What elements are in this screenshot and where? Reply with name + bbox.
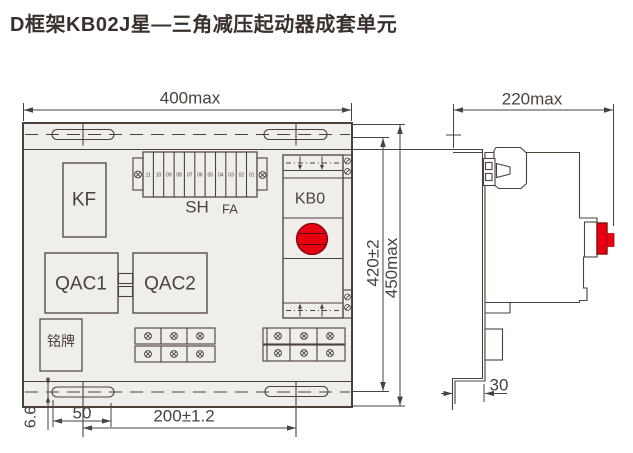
dim-label-width: 400max [160, 89, 221, 108]
screw-icon [345, 158, 351, 164]
screw-icon [301, 350, 308, 357]
screw-icon [135, 171, 142, 178]
screw-icon [327, 333, 334, 340]
screw-icon [145, 351, 152, 358]
screw-icon [345, 305, 351, 311]
screw-icon [275, 350, 282, 357]
technical-drawing: 400max 220max 420±2 450max 6.6 50 200±1.… [0, 0, 633, 453]
din-clip-box [485, 329, 503, 360]
dim-label-slot-width: 6.6 [23, 406, 40, 428]
red-push-button [297, 224, 328, 255]
terminal-number: 03 [228, 173, 234, 179]
qac2-label: QAC2 [144, 274, 196, 295]
fa-label: FA [222, 202, 238, 217]
dim-label-hole-height: 420±2 [364, 239, 383, 286]
terminal-number: 05 [208, 173, 214, 179]
dim-label-outer-height: 450max [382, 237, 401, 298]
screw-icon [145, 333, 152, 340]
screw-icon [275, 333, 282, 340]
terminal-number: 08 [176, 173, 182, 179]
dim-label-foot: 30 [490, 376, 509, 395]
terminal-number: 02 [239, 173, 245, 179]
screw-icon [259, 172, 266, 179]
screw-icon [197, 333, 204, 340]
red-button-tip [607, 234, 614, 247]
screw-icon [197, 351, 204, 358]
screw-icon [327, 350, 334, 357]
sh-label: SH [185, 198, 209, 217]
terminal-number: 10 [156, 173, 162, 179]
qac1-label: QAC1 [55, 274, 107, 295]
terminal-number: 07 [187, 173, 193, 179]
screw-icon [171, 351, 178, 358]
dim-label-depth: 220max [502, 90, 563, 109]
terminal-number: 04 [218, 173, 224, 179]
dim-label-hole-spacing: 200±1.2 [153, 407, 214, 426]
nameplate-label: 铭牌 [47, 333, 75, 349]
mounting-bracket [453, 150, 483, 411]
screw-icon [301, 333, 308, 340]
kf-label: KF [72, 190, 96, 211]
terminal-number: 09 [166, 173, 172, 179]
screw-icon [345, 169, 351, 175]
kb0-label: KB0 [295, 191, 325, 208]
screw-icon [171, 333, 178, 340]
dim-label-slot-length: 50 [73, 404, 92, 423]
terminal-number: 06 [197, 173, 203, 179]
panel-outline [23, 123, 352, 407]
screw-icon [345, 294, 351, 300]
red-button-base [597, 223, 607, 254]
dim-200 [83, 425, 296, 430]
terminal-number: 01 [249, 173, 255, 179]
drawing-page: D框架KB02J星—三角减压起动器成套单元 [0, 0, 633, 453]
terminal-number: 11 [146, 173, 151, 179]
